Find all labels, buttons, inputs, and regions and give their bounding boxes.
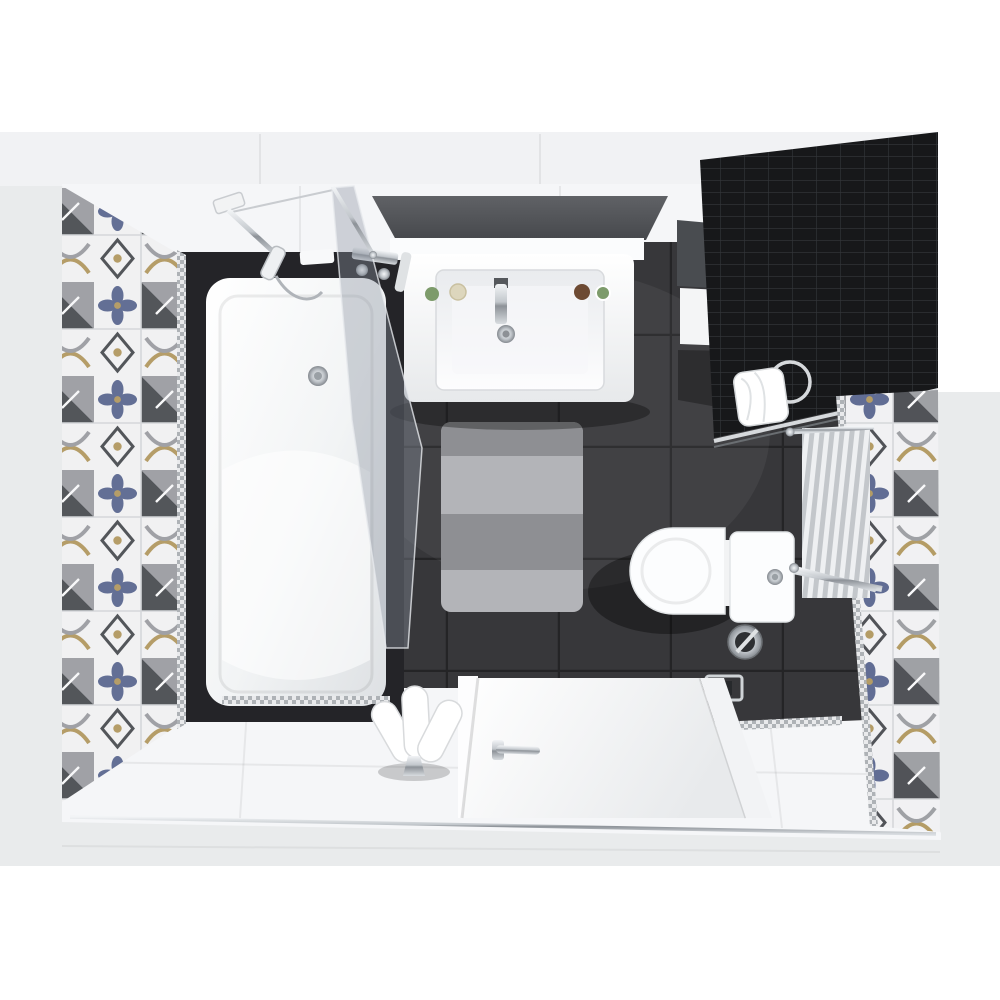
cutaway-white [938, 130, 1000, 392]
open-door [458, 676, 772, 818]
striped-rug [441, 422, 583, 612]
accessory-green-cup [425, 287, 439, 301]
scene-canvas [0, 0, 1000, 1000]
wall-towel [732, 367, 789, 427]
toilet-tank [730, 532, 794, 622]
left-wall-trim [177, 250, 186, 729]
accessory-green-jar [596, 286, 610, 300]
vanity-sink [372, 196, 668, 430]
toilet-brush [728, 625, 762, 659]
accessory-brown-cup [574, 284, 590, 300]
tub-apron-trim [222, 696, 390, 704]
door-handle [496, 745, 540, 755]
bathroom-render [0, 0, 1000, 1000]
left-patterned-wall [62, 186, 186, 802]
accessory-soap-dish [450, 284, 466, 300]
vanity-counter [372, 196, 668, 240]
sink-faucet [495, 284, 507, 324]
